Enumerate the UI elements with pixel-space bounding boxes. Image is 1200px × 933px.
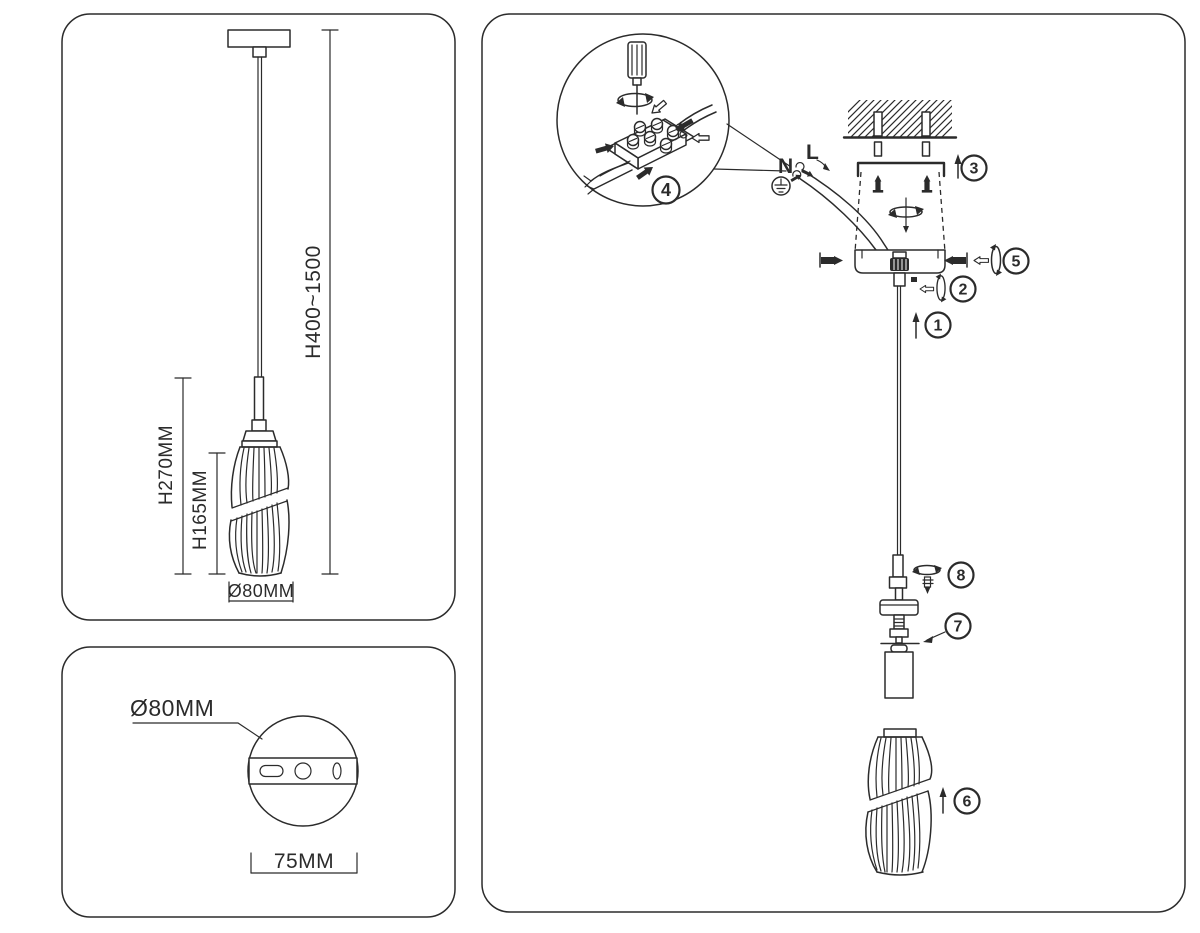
lamp-stem <box>255 377 264 420</box>
neutral-label: N <box>778 155 794 178</box>
dim-label-shade-total-height: H270MM <box>156 425 177 505</box>
dim-canopy-width: 75MM <box>251 850 357 873</box>
canopy-projection-left <box>855 172 861 252</box>
ceiling-hatch <box>820 98 981 140</box>
socket-assembly: 8 7 <box>880 555 974 698</box>
step-2-arrow <box>920 285 934 292</box>
step-3-badge: 3 <box>962 156 987 181</box>
canopy-rotate-icon <box>888 198 924 233</box>
stem-collar <box>252 420 266 431</box>
step-7-badge: 7 <box>946 614 971 639</box>
step-6-number: 6 <box>963 794 972 811</box>
ceiling-plate <box>228 30 290 47</box>
cord-lock <box>894 273 905 286</box>
dim-shade-total-height: H270MM <box>156 378 191 574</box>
step-7-arrow <box>923 632 945 643</box>
step-5-number: 5 <box>1012 254 1021 271</box>
panel-assembly-steps: 4 N L <box>482 14 1185 912</box>
step-6-badge: 6 <box>955 789 980 814</box>
ceiling-section: 3 <box>820 98 987 252</box>
pendant-cord <box>898 286 901 555</box>
threaded-stem <box>894 615 904 629</box>
step-2-number: 2 <box>959 282 968 299</box>
glass-shade <box>229 447 289 576</box>
shade-rim <box>242 441 277 447</box>
suspension-cord <box>258 57 262 377</box>
dim-height-range: H400~1500 <box>302 30 338 574</box>
step-8-turn-icon <box>912 565 942 594</box>
shade-holder-disc <box>880 600 918 615</box>
canopy-width-label: 75MM <box>274 850 334 873</box>
canopy-diameter-label: Ø80MM <box>130 695 214 721</box>
step-3-arrow <box>955 154 962 178</box>
step-2-turn-icon <box>936 274 947 303</box>
dim-label-shade-glass-height: H165MM <box>190 470 211 550</box>
wiring-detail-balloon: 4 <box>557 34 791 206</box>
dim-shade-diameter: Ø80MM <box>228 581 295 602</box>
canopy-side-screw-right <box>944 253 967 267</box>
cord-connector <box>253 47 266 57</box>
screwdriver-icon <box>628 42 646 114</box>
shade-ribs-upper <box>240 448 277 505</box>
stem-nut <box>890 629 908 637</box>
canopy-leader-line <box>133 723 262 739</box>
shade-ribs-lower <box>236 503 280 573</box>
lock-set-screw <box>911 277 917 282</box>
anchor-hole-left <box>874 112 882 136</box>
step-4-badge: 4 <box>653 177 680 204</box>
tube-collar <box>890 577 907 588</box>
diagram-canvas: H400~1500 H270MM H165MM Ø80MM Ø80MM <box>0 0 1200 933</box>
panel-dimension-drawing: H400~1500 H270MM H165MM Ø80MM <box>62 14 455 620</box>
step-5-arrow <box>974 257 988 265</box>
step-8-number: 8 <box>957 568 966 585</box>
wall-plug-right <box>923 142 930 156</box>
canopy-side-screw-left <box>820 253 843 267</box>
tube-lower <box>896 588 903 600</box>
cord-grip-neck <box>893 252 906 258</box>
step-8-badge: 8 <box>949 563 974 588</box>
cord-grip-knurl <box>890 258 909 271</box>
step-5-turn-icon <box>990 244 1002 276</box>
step-2-badge: 2 <box>951 277 976 302</box>
dim-shade-glass-height: H165MM <box>190 453 225 574</box>
cord-tube <box>893 555 903 577</box>
pendant-side-view <box>228 30 290 576</box>
lamp-socket <box>885 652 913 698</box>
flange-cap <box>891 645 907 652</box>
bracket-screw-left-icon <box>873 175 883 193</box>
anchor-hole-right <box>922 112 930 136</box>
instruction-sheet: H400~1500 H270MM H165MM Ø80MM Ø80MM <box>0 0 1200 933</box>
shade-cap <box>243 431 276 441</box>
glass-shade-exploded: 6 <box>866 729 980 875</box>
stem-neck <box>896 637 902 643</box>
step-6-arrow <box>940 787 947 813</box>
panel-assembly-border <box>482 14 1185 912</box>
step-3-number: 3 <box>970 161 979 178</box>
guide-arrow-side <box>692 134 709 143</box>
rotate-arrow-icon <box>616 93 654 107</box>
step-7-number: 7 <box>954 619 963 636</box>
canopy-assembly: 5 2 <box>820 244 1029 302</box>
step-1-arrow <box>913 312 920 338</box>
mounting-bracket <box>858 163 944 176</box>
dim-label-shade-diameter: Ø80MM <box>228 581 295 601</box>
shade-neck-ring <box>884 729 916 737</box>
step-4-number: 4 <box>661 180 671 200</box>
shade-ribs-lower <box>871 794 920 872</box>
wall-plug-left <box>875 142 882 156</box>
step-1-badge: 1 <box>926 313 951 338</box>
bracket-screw-right-icon <box>922 175 932 193</box>
dim-label-height-range: H400~1500 <box>302 245 325 359</box>
canopy-bottom-view <box>248 716 358 826</box>
canopy-projection-right <box>939 172 945 252</box>
shade-ribs-upper <box>876 738 919 797</box>
panel-canopy-detail: Ø80MM 75MM <box>62 647 455 917</box>
step-1-number: 1 <box>934 318 943 335</box>
step-5-badge: 5 <box>1004 249 1029 274</box>
